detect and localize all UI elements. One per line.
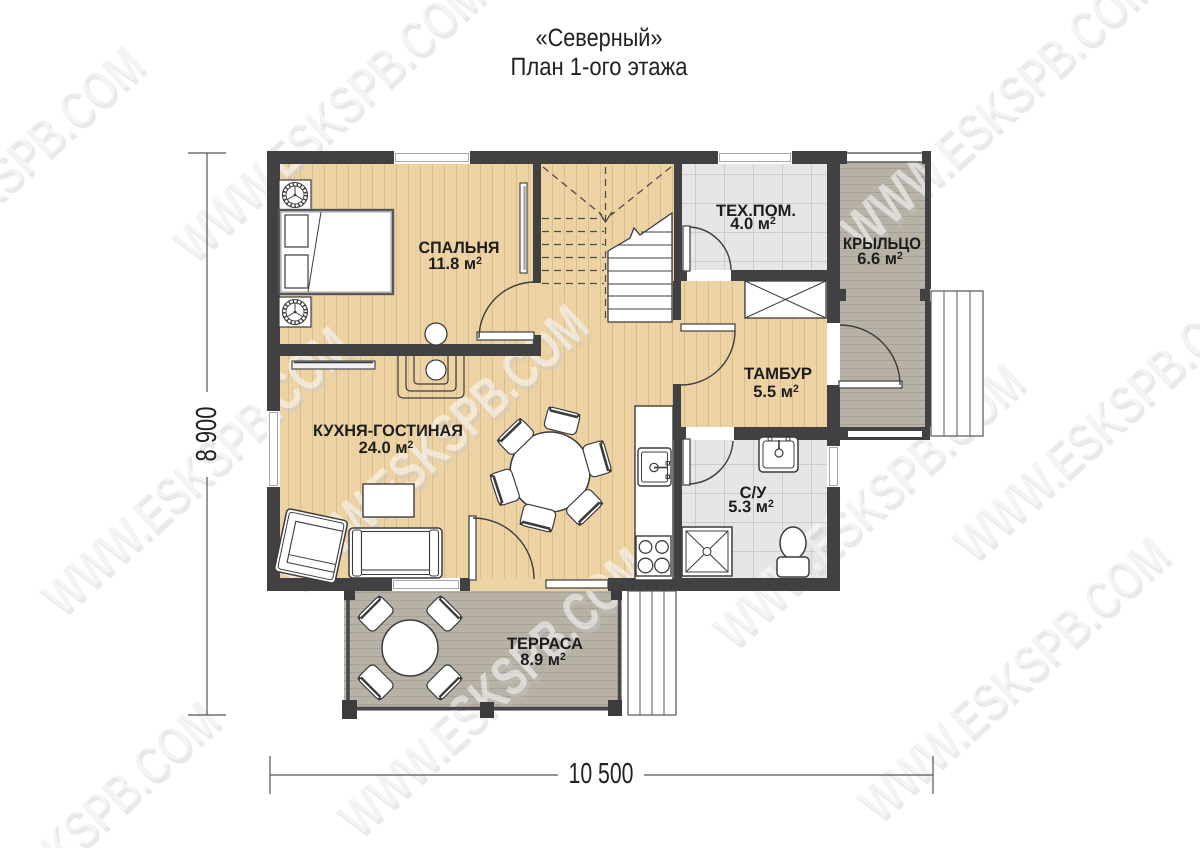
svg-text:6.6 м2: 6.6 м2	[857, 250, 903, 268]
svg-text:10 500: 10 500	[569, 758, 634, 790]
svg-text:5.3 м2: 5.3 м2	[728, 498, 774, 516]
svg-text:ТАМБУР: ТАМБУР	[744, 365, 812, 383]
svg-text:11.8 м2: 11.8 м2	[428, 255, 482, 273]
svg-text:8.9 м2: 8.9 м2	[520, 651, 566, 669]
svg-text:8 900: 8 900	[191, 407, 223, 462]
svg-text:4.0 м2: 4.0 м2	[730, 215, 776, 233]
svg-text:24.0 м2: 24.0 м2	[359, 439, 414, 457]
svg-text:«Северный»: «Северный»	[536, 24, 663, 52]
svg-text:КУХНЯ-ГОСТИНАЯ: КУХНЯ-ГОСТИНАЯ	[313, 422, 463, 440]
svg-text:5.5 м2: 5.5 м2	[753, 383, 799, 401]
svg-text:План 1-ого этажа: План 1-ого этажа	[511, 53, 688, 81]
